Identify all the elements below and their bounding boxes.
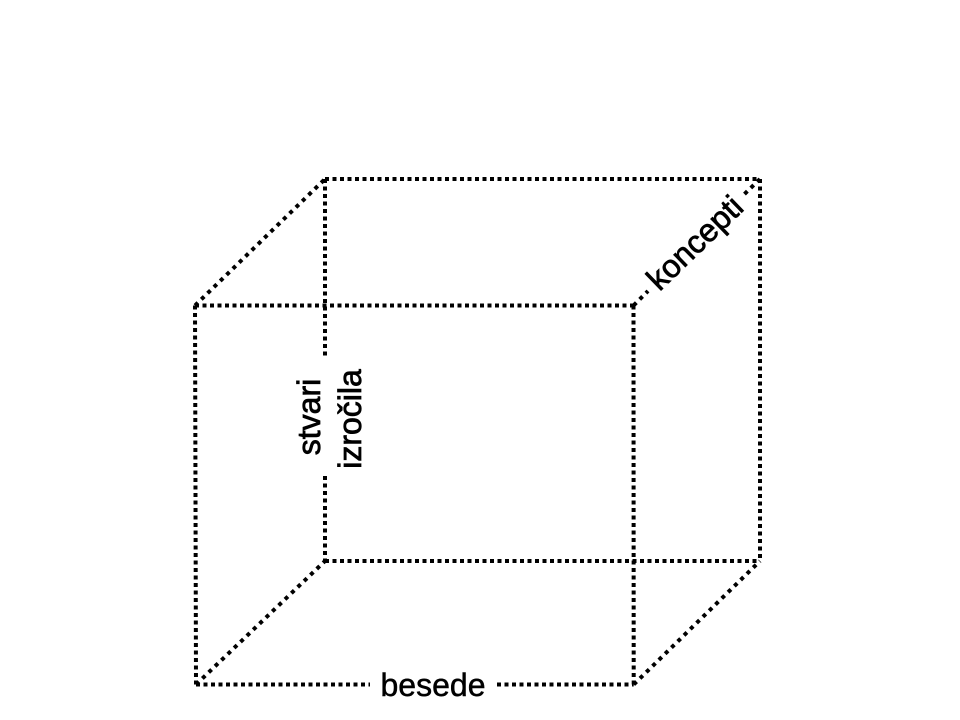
svg-text:besede: besede — [381, 667, 486, 703]
svg-text:izročila: izročila — [332, 369, 368, 469]
svg-text:stvari: stvari — [291, 379, 327, 455]
svg-text:koncepti: koncepti — [639, 188, 750, 297]
